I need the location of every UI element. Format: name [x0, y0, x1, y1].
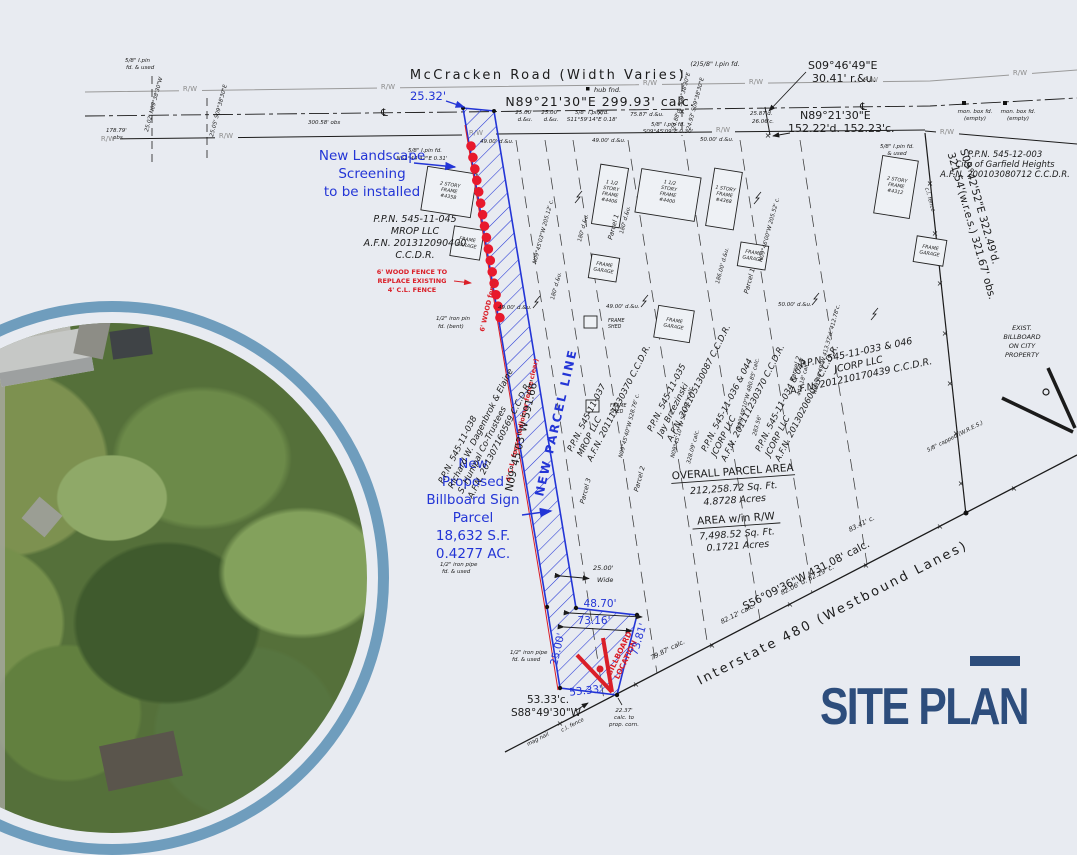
- rw-label: R/W: [183, 85, 197, 93]
- se-leader: [769, 72, 806, 111]
- iron-pipe-label: 1/2" iron pipe: [510, 650, 548, 656]
- note-line: prop. corn.: [608, 722, 639, 728]
- corner-point: [574, 606, 578, 610]
- mon-label: mon. box fd.: [958, 109, 993, 115]
- right-boundary-labels: S09°42'52"E 322.49'd. 321.54'(w.r.e.s.) …: [923, 148, 1075, 454]
- iron-pin-bent-label: 1/2" iron pin: [436, 316, 471, 322]
- left-30058: 300.58' obs: [308, 120, 340, 126]
- parcel-line-text: A.F.N. 201312090400: [363, 238, 467, 249]
- site-plan-page: { "title": { "text": "SITE PLAN" }, "roa…: [0, 0, 1077, 778]
- dim-5333c: 53.33'c.: [527, 694, 569, 706]
- billboard-point: [597, 666, 604, 673]
- pin-used: 5/8" I.pin fd.: [880, 144, 914, 150]
- garage-2: FRAME GARAGE: [588, 254, 619, 282]
- survey-drawing: × × × R/W R/W R/W R/W R/W R/W R/W R/W R/…: [0, 0, 1077, 778]
- parcel1-label: Parcel 1: [742, 267, 756, 294]
- road-bearing: N89°21'30"E 299.93' calc.: [505, 94, 694, 109]
- rw-label: R/W: [940, 128, 954, 136]
- pin-tick: ×: [765, 131, 772, 140]
- left-2505: 25.05' S09°38'30"E: [209, 84, 229, 138]
- pin-s09: 5/8" I.pin fd.: [651, 122, 685, 128]
- mag-nail-label: mag nail: [526, 731, 550, 747]
- pin-s09: S09°45'09"E 0.30': [643, 129, 693, 135]
- parcel3-label: Parcel 3: [578, 477, 592, 504]
- dim-7316: 73.16': [578, 615, 611, 627]
- fence-note-line: 6' WOOD FENCE TO: [377, 268, 448, 276]
- parcel-line-text: MROP LLC: [391, 226, 440, 237]
- hub-found: hub fnd.: [594, 86, 621, 94]
- iron-pipe-label: 1/2" iron pipe: [440, 562, 478, 568]
- south-rw-line-west: [110, 135, 462, 139]
- page-title: SITE PLAN: [820, 678, 1028, 736]
- title-block: SITE PLAN: [820, 656, 1028, 736]
- iron-pipe-label: fd. & used: [442, 569, 471, 575]
- proposed-line: 0.4277 AC.: [436, 546, 510, 562]
- break-symbols: [533, 191, 878, 320]
- svg-text:×: ×: [1011, 484, 1018, 493]
- house-4400: 1 1/2 STORY FRAME #4400: [635, 169, 701, 222]
- landscape-line: New Landscape: [319, 148, 425, 164]
- exist-billboard-note: EXIST. BILLBOARD ON CITY PROPERTY: [1002, 324, 1075, 432]
- dim-49-mid: 49.00' d.&u.: [606, 304, 640, 310]
- hub-marker: [586, 87, 590, 91]
- mon-box-2: [1003, 101, 1007, 105]
- exist-line: EXIST.: [1012, 324, 1032, 332]
- se-bearing: S09°46'49"E: [808, 59, 878, 72]
- dim-25: 25.00': [541, 110, 558, 116]
- east-distance: 152.22'd. 152.23'c.: [788, 122, 895, 135]
- svg-text:×: ×: [709, 641, 716, 650]
- parcel-003: P.P.N. 545-12-003: [968, 150, 1042, 160]
- boundary-junction-point: [964, 511, 969, 516]
- left-pin: 5/8" I.pin: [125, 58, 151, 64]
- left-17879: obs: [113, 135, 123, 141]
- pin2-label: (2)5/8" I.pin fd.: [690, 60, 739, 68]
- bearing-s88: S88°49'30"W: [511, 707, 582, 719]
- exist-billboard-bar: [1048, 368, 1075, 428]
- mon-label: (empty): [1007, 116, 1029, 122]
- parcel2-label: Parcel 2: [632, 465, 646, 492]
- highway-dim-8341: 83.41' c.: [847, 514, 876, 534]
- landscape-line: Screening: [338, 166, 405, 182]
- dim-50: 50.00' d.&u.: [700, 137, 734, 143]
- exist-line: ON CITY: [1009, 342, 1036, 350]
- exist-line: PROPERTY: [1005, 351, 1040, 359]
- shed-label: SHED: [608, 324, 622, 330]
- parcel-text-blocks: P.P.N. 545-11-045 MROP LLC A.F.N. 201312…: [363, 213, 934, 504]
- centerline-symbol: ℄: [380, 107, 388, 119]
- dim-7587: 75.87' d.&u.: [630, 112, 664, 118]
- dim-2532: 25.32': [410, 89, 446, 103]
- dim-25-wide: 25.00': [593, 564, 614, 572]
- svg-text:×: ×: [942, 329, 949, 338]
- landscape-line: to be installed: [324, 184, 420, 200]
- mon-label: mon. box fd.: [1001, 109, 1036, 115]
- road-name: McCracken Road (Width Varies): [410, 68, 686, 83]
- proposed-line: Parcel: [453, 510, 494, 526]
- dim-2532-leader: [446, 101, 464, 107]
- pin-s11: S11°59'14"E 0.18': [567, 117, 617, 123]
- corner-point: [615, 693, 619, 697]
- cl-fence-label: c.l. fence: [560, 717, 586, 734]
- lbl-20552: N09°46'00"W 205.52' c.: [758, 197, 781, 263]
- pin-used: & used: [887, 151, 907, 157]
- parcel-line-text: P.P.N. 545-11-045: [373, 214, 456, 225]
- mon-box-1: [962, 101, 966, 105]
- dim-du: d.&u.: [544, 117, 559, 123]
- highway-dim-7987: 79.87' calc.: [649, 638, 686, 662]
- iron-pipe-label: fd. & used: [512, 657, 541, 663]
- house-4358: 2 STORY FRAME #4358: [421, 166, 477, 217]
- dim-49-mid: 49.00' d.&u.: [498, 305, 532, 311]
- pin-s11: 5/8" I.pin fd.: [575, 110, 609, 116]
- exist-billboard-post: [1043, 389, 1049, 395]
- east-bearing: N89°21'30"E: [800, 109, 871, 122]
- svg-text:×: ×: [633, 680, 640, 689]
- shed-1: FRAME SHED: [584, 316, 626, 330]
- parcel-line-text: C.C.D.R.: [395, 250, 434, 261]
- dim-5333: 53.33': [569, 683, 603, 698]
- note-line: 22.37': [615, 708, 632, 714]
- svg-text:×: ×: [947, 379, 954, 388]
- left-17879: 178.79': [106, 128, 127, 134]
- dim-25-wide: Wide: [597, 576, 613, 584]
- rw-label: R/W: [219, 132, 233, 140]
- dim-2587: 25.87'd.: [750, 111, 773, 117]
- rw-label: R/W: [716, 126, 730, 134]
- svg-text:×: ×: [937, 279, 944, 288]
- corner-point: [492, 109, 496, 113]
- garage-5: FRAME GARAGE: [913, 236, 947, 266]
- iron-pin-bent-label: fd. (bent): [438, 324, 464, 330]
- se-distance: 30.41' r.&u.: [812, 72, 876, 85]
- highway-dim-8212: 82.12' calc.: [719, 602, 756, 626]
- dim-25: 25.00': [515, 110, 532, 116]
- left-pin: fd. & used: [126, 65, 155, 71]
- lbl-180: 180' d.&u.: [550, 271, 563, 300]
- house-4312: 2 STORY FRAME #4312: [874, 156, 919, 219]
- title-bar: [970, 656, 1020, 666]
- lbl-328: 328.09' calc.: [686, 429, 701, 465]
- dim-50-mid: 50.00' d.&u.: [778, 302, 812, 308]
- area-rw-title: AREA w/in R/W: [697, 510, 776, 527]
- house-4368: 1 STORY FRAME #4368: [706, 168, 743, 230]
- note-leader: [618, 698, 622, 705]
- landscape-leader: [414, 163, 455, 167]
- area-summary: OVERALL PARCEL AREA 212,258.72 Sq. Ft. 4…: [670, 462, 800, 556]
- rw-label: R/W: [749, 78, 763, 86]
- prop-corner-note: 22.37' calc. to prop. corn.: [608, 698, 639, 728]
- rw-label: R/W: [381, 83, 395, 91]
- dim-4870: 48.70': [584, 598, 617, 610]
- road-labels: McCracken Road (Width Varies) N89°21'30"…: [106, 58, 1070, 180]
- svg-text:×: ×: [863, 561, 870, 570]
- dim-49: 49.00' d.&u.: [480, 139, 514, 145]
- exist-line: BILLBOARD: [1003, 333, 1040, 341]
- dim-2606: 26.06'c.: [752, 119, 774, 125]
- shed-label: FRAME: [608, 318, 626, 324]
- garage-4: FRAME GARAGE: [654, 305, 695, 342]
- cl-fence-label: c.l. fence: [923, 187, 936, 213]
- lbl-186: 186.00' d.&u.: [715, 247, 731, 285]
- svg-text:×: ×: [958, 479, 965, 488]
- fence-note: 6' WOOD FENCE TO REPLACE EXISTING 4' C.L…: [377, 268, 448, 294]
- svg-text:×: ×: [932, 229, 939, 238]
- mon-label: (empty): [964, 116, 986, 122]
- dim-du: d.&u.: [518, 117, 533, 123]
- left-2502: 25.02' N09°38'30"W: [144, 76, 165, 133]
- svg-text:×: ×: [937, 522, 944, 531]
- rw-label: R/W: [1013, 69, 1027, 77]
- fence-note-line: REPLACE EXISTING: [377, 277, 446, 285]
- proposed-line: 18,632 S.F.: [436, 528, 510, 544]
- note-line: calc. to: [614, 715, 635, 721]
- dim-49: 49.00' d.&u.: [592, 138, 626, 144]
- lbl-205: N09°45'03"W 205.12' c.: [532, 199, 555, 265]
- capped-pin-label: 5/8" capped (W.R.E.S.): [926, 420, 984, 454]
- fence-note-line: 4' C.L. FENCE: [388, 286, 436, 294]
- svg-text:×: ×: [787, 600, 794, 609]
- fence-note-leader: [454, 281, 471, 283]
- corner-point: [558, 686, 562, 690]
